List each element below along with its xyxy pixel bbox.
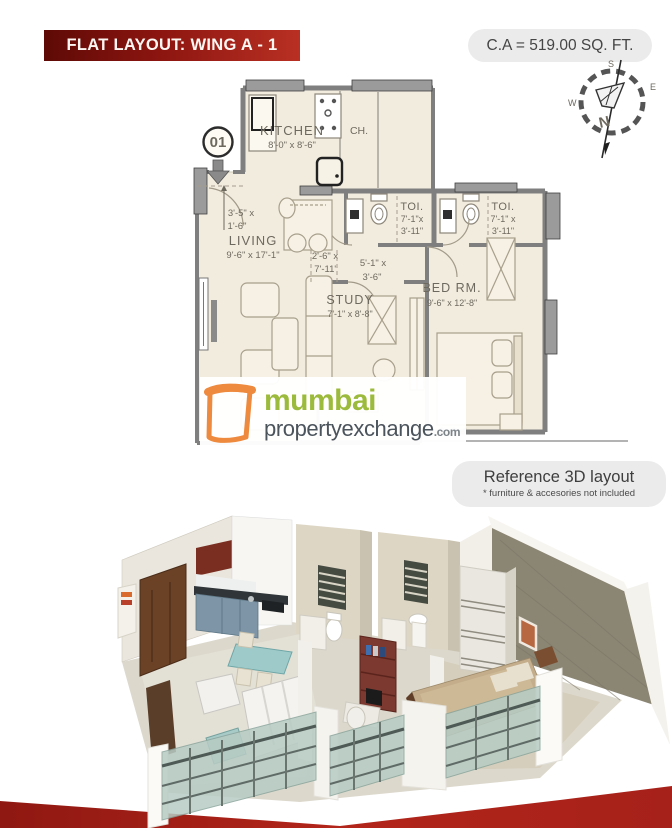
kitchen-label: KITCHEN [260, 123, 324, 138]
threed-render [0, 470, 672, 828]
study-dims: 7'-1" x 8'-8" [327, 309, 372, 319]
balcony-pier [402, 700, 446, 790]
kitchen-sink-icon [317, 158, 342, 185]
toilet1-label: TOI. [400, 201, 423, 213]
study-label: STUDY [326, 293, 373, 307]
toilet1-wc-icon [371, 204, 387, 224]
entrance-door-3d [140, 564, 186, 676]
dining-chair-3d [238, 632, 254, 648]
logo-suffix: .com [434, 425, 460, 439]
unit-number: 01 [210, 134, 227, 151]
hall-passage-dims-1: 5'-1" x [360, 258, 387, 269]
logo-word-secondary: propertyexchange.com [264, 418, 460, 440]
kitchen-sink-3d [248, 596, 254, 602]
pillow [492, 340, 512, 366]
bedroom-label: BED RM. [422, 281, 481, 295]
bath2-louver-window [404, 560, 428, 604]
wardrobe-3d-side [506, 567, 516, 676]
bedroom-dims: 9'-6" x 12'-8" [427, 298, 477, 308]
mid-passage-dims-1: 2'-6" x [312, 251, 339, 262]
logo-orange-square-icon [200, 381, 258, 445]
entry-passage-dims-2: 1'-6" [228, 221, 247, 232]
toilet2-wc-icon [463, 204, 479, 224]
living-window [199, 278, 208, 350]
toilet2-dims-1: 7'-1" x [491, 214, 516, 224]
bath1-louver-window [318, 565, 346, 610]
toilet1-dims-2: 3'-11" [401, 226, 423, 236]
living-dims: 9'-6" x 17'-1" [226, 250, 279, 261]
bath2-side-wall [448, 540, 460, 652]
study-chair-3d [347, 707, 365, 729]
living-label: LIVING [229, 233, 278, 248]
toilet1-dims-1: 7'-1"x [401, 214, 424, 224]
dining-set [279, 198, 332, 252]
flyer-page: FLAT LAYOUT: WING A - 1 C.A = 519.00 SQ.… [0, 0, 672, 828]
toilet2-dims-2: 3'-11" [492, 226, 514, 236]
bath1-toilet-3d [326, 619, 342, 641]
dining-chair-3d [236, 668, 252, 686]
armchair [241, 283, 279, 317]
entry-arrow-icon [213, 160, 223, 171]
entry-passage-dims-1: 3'-5" x [228, 208, 255, 219]
pillow [492, 372, 512, 398]
bedside-table [500, 414, 522, 430]
mid-passage-dims-2: 7'-11" [314, 264, 338, 275]
bath1-side-wall [360, 530, 372, 642]
coffee-table [272, 318, 298, 370]
toilet2-label: TOI. [491, 201, 514, 213]
brand-logo: mumbai propertyexchange.com [200, 377, 466, 448]
logo-word-secondary-text: propertyexchange [264, 416, 434, 441]
kitchen-dims: 8'-0" x 8'-6" [268, 140, 316, 151]
logo-word-primary: mumbai [264, 386, 460, 416]
hall-passage-dims-2: 3'-6" [363, 272, 382, 283]
study-tv-3d [366, 688, 382, 706]
duct-label: CH. [350, 125, 368, 137]
tv-unit [211, 300, 217, 342]
